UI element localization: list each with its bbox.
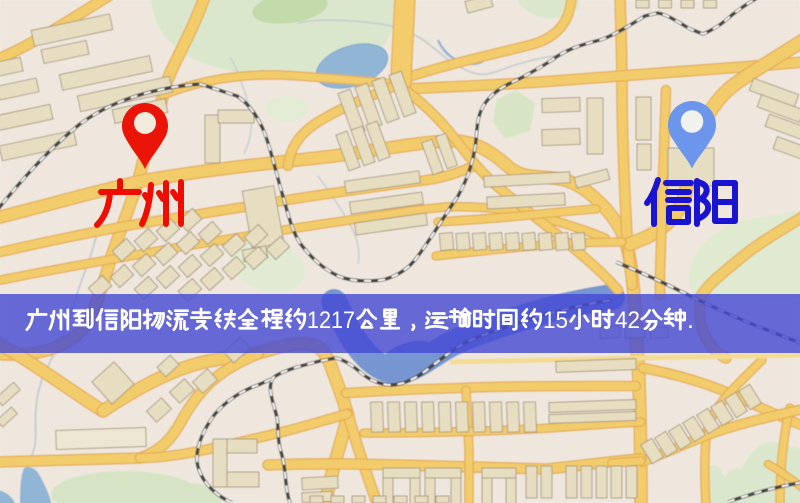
svg-text:.: . [687, 306, 694, 334]
svg-text:42: 42 [615, 307, 640, 334]
svg-text:15: 15 [543, 307, 568, 334]
svg-text:1217: 1217 [307, 307, 355, 334]
